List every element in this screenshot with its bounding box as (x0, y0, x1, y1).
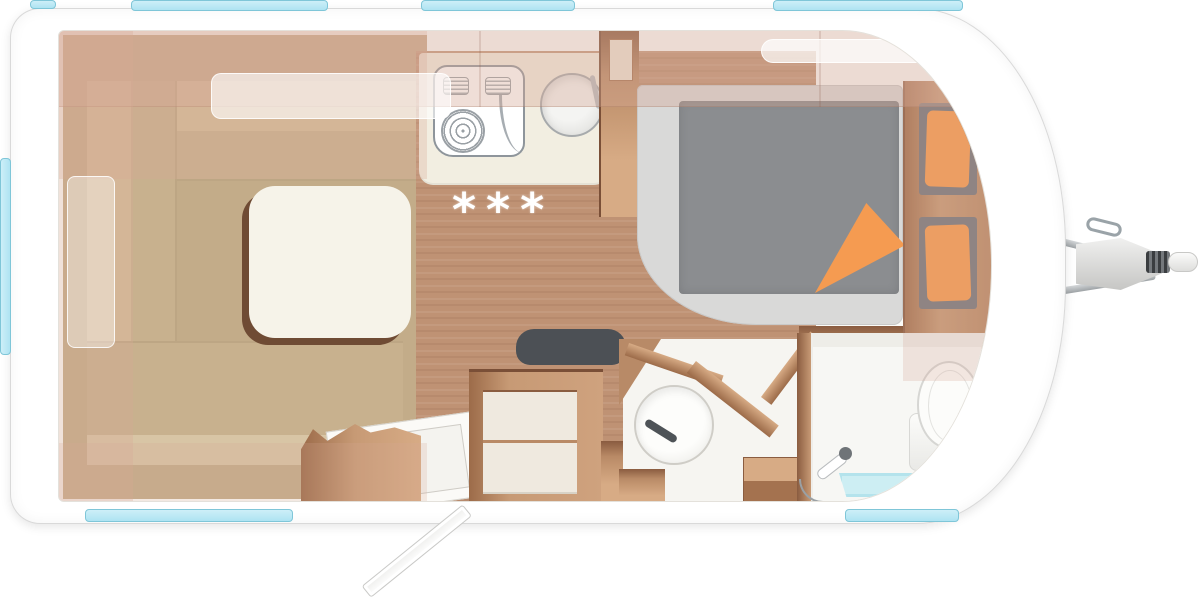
bed-head-wardrobe (903, 81, 992, 349)
bench-seat-cabinet (469, 369, 603, 502)
kitchen-divider-cabinet (599, 30, 639, 217)
bathroom-partition-wall (797, 333, 813, 502)
hand-shower-head-icon (839, 447, 852, 460)
interior: *** (58, 30, 992, 502)
bench-seat-cushion (516, 329, 626, 365)
dinette-table (249, 186, 411, 338)
hitch-handbrake-handle-icon (1085, 216, 1123, 238)
hob-burner-grate-icon (443, 77, 469, 95)
washroom-step (743, 457, 801, 502)
window-rear-left (0, 158, 11, 355)
hob-burner-icon (441, 109, 485, 153)
toilet-lid-inner (928, 370, 972, 442)
caravan-floorplan: *** (0, 0, 1200, 602)
toilet-lid (917, 361, 981, 449)
bench-cabinet-shelf (483, 440, 577, 443)
stars-marking: *** (452, 191, 592, 235)
hitch-head (1146, 251, 1170, 273)
window-bottom-bath (845, 509, 959, 522)
pillow-niche (919, 103, 977, 195)
window-top-rear (131, 0, 328, 11)
hitch-knob (1168, 252, 1198, 272)
window-top-kitchen (421, 0, 575, 11)
bench-cabinet-opening (483, 390, 577, 494)
hob-drainer-curve (499, 95, 523, 153)
hob-burner-grate-icon (485, 77, 511, 95)
window-bottom-lounge (85, 509, 293, 522)
pillow (925, 224, 972, 301)
lounge-seat-bottom (87, 341, 403, 437)
window-top-bed (773, 0, 963, 11)
pillow (925, 110, 972, 187)
shower-tray (839, 473, 945, 497)
washroom-base-cabinet (619, 469, 665, 502)
divider-shelf-opening (609, 39, 633, 81)
cassette-toilet (909, 361, 987, 473)
kitchen-hob-unit (433, 65, 525, 157)
pillow-niche (919, 217, 977, 309)
window-top-corner (30, 0, 56, 9)
